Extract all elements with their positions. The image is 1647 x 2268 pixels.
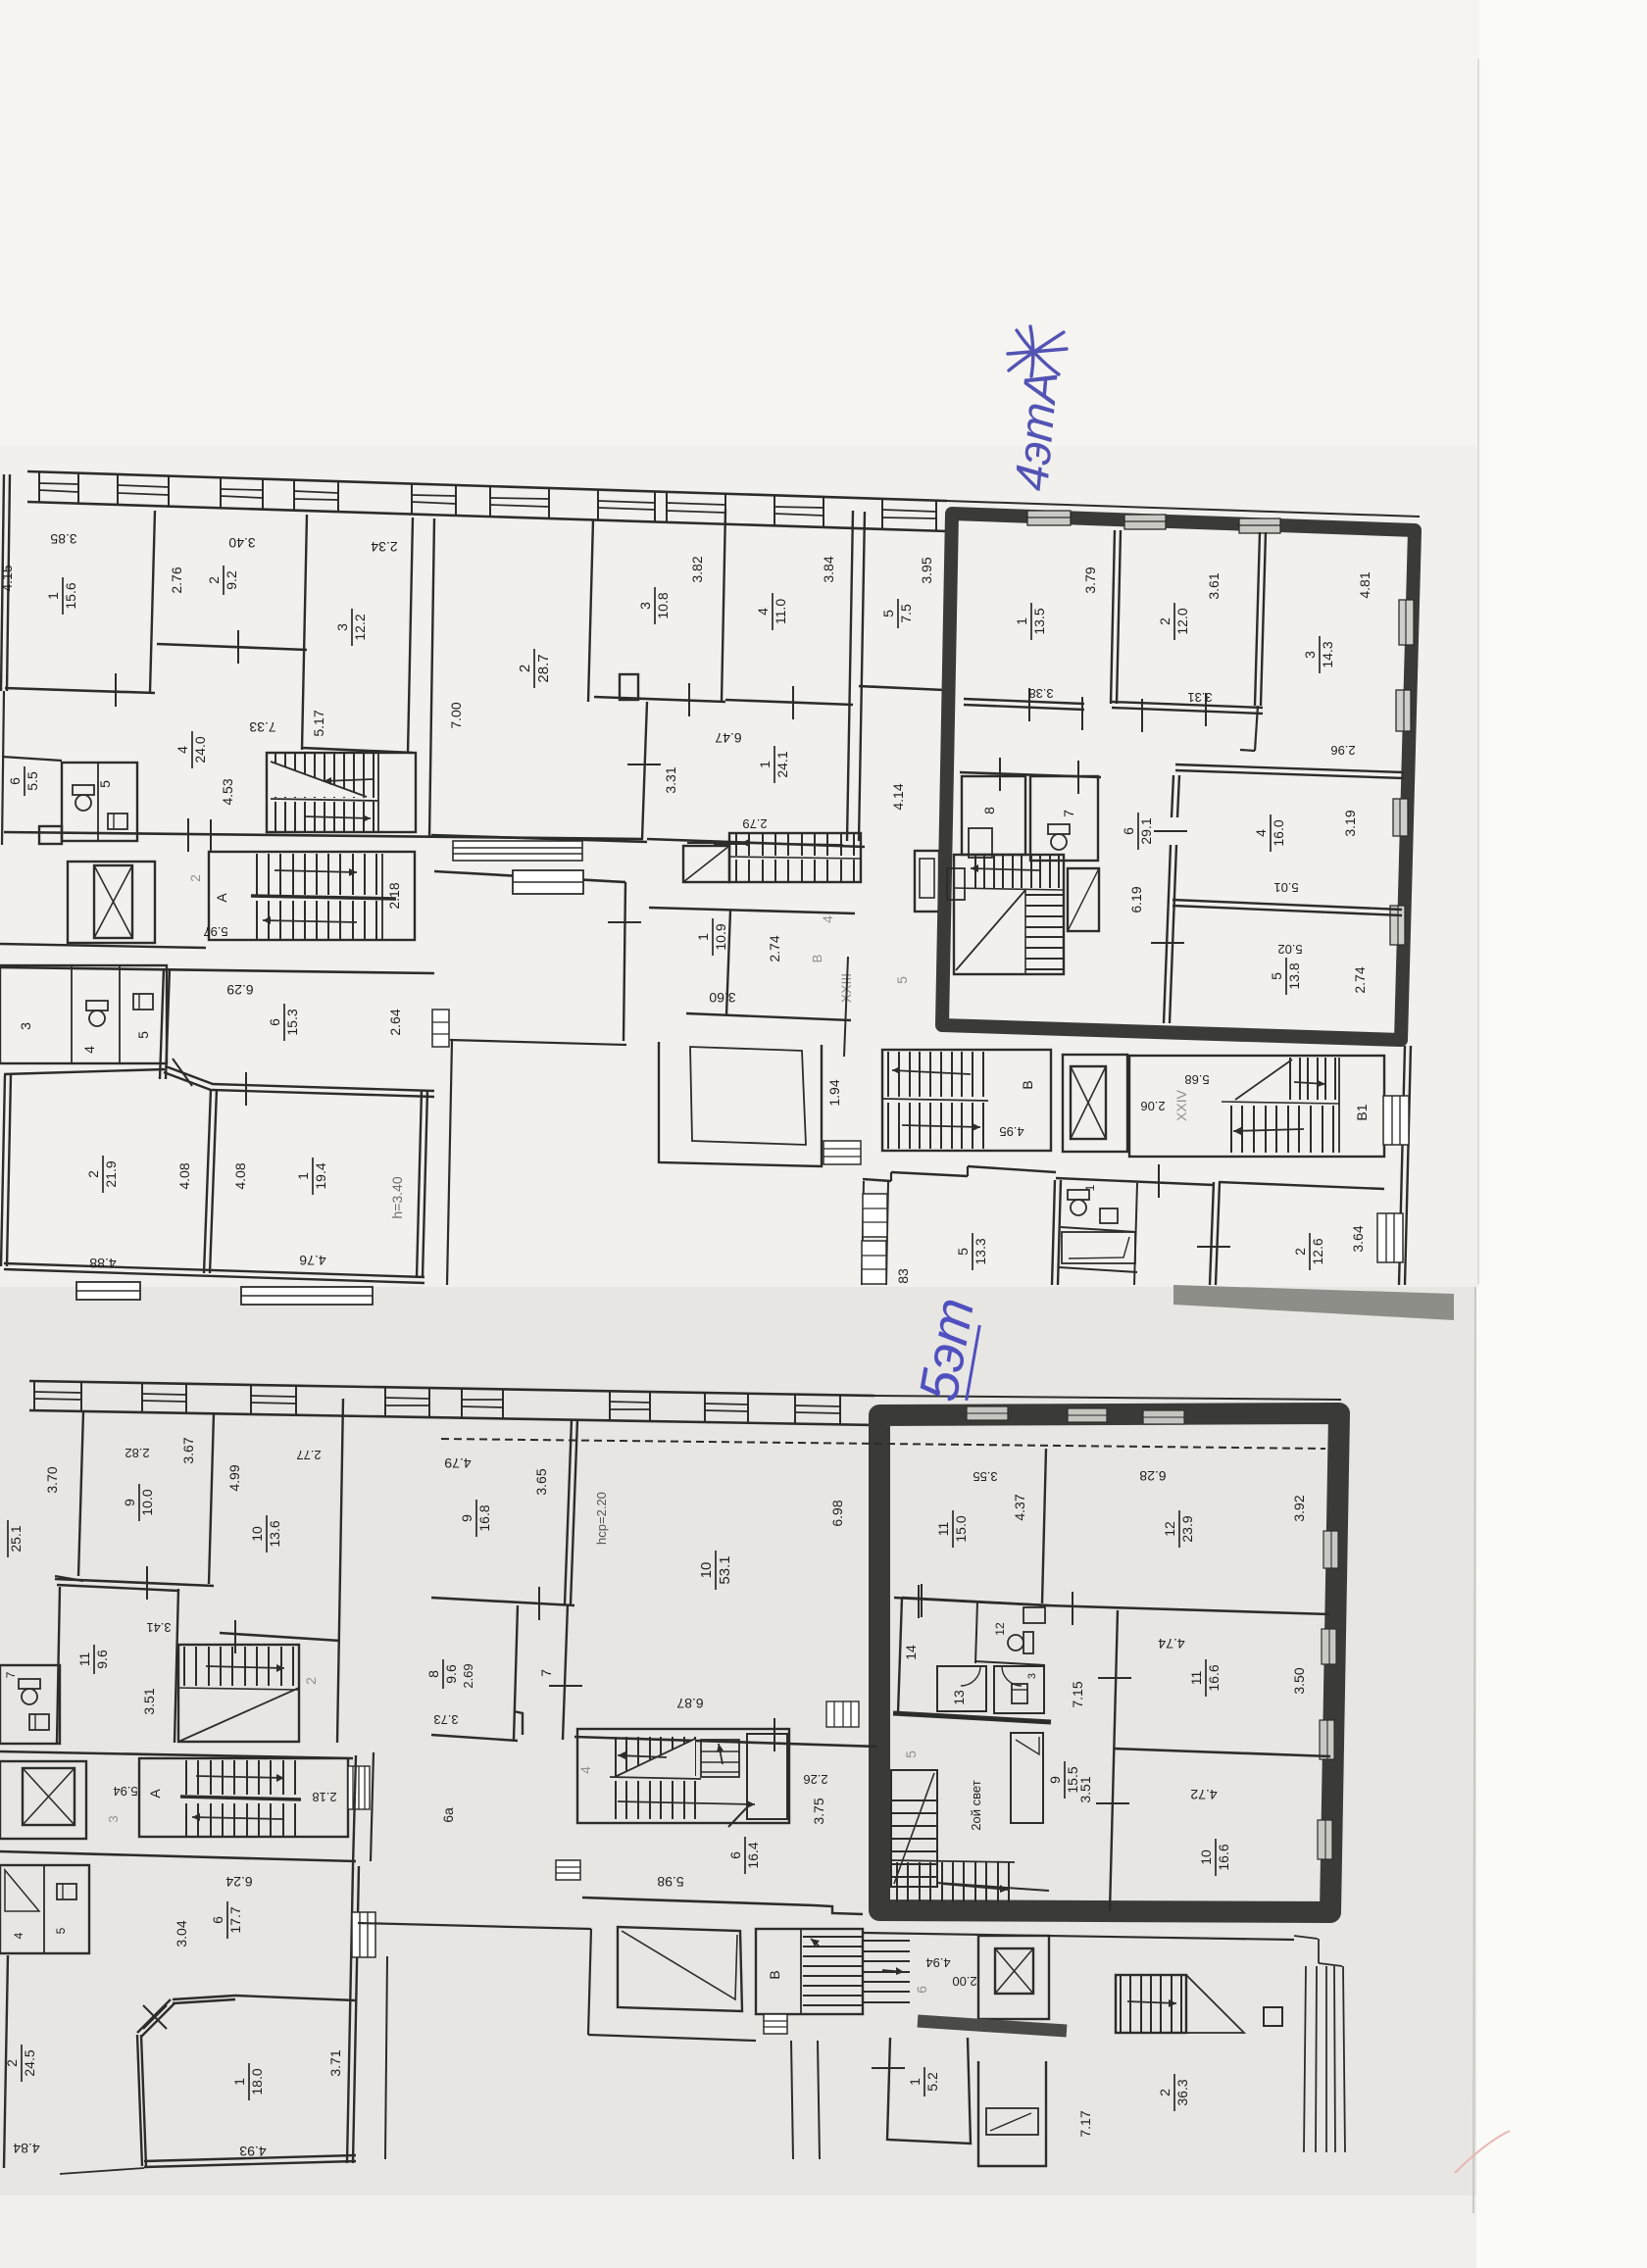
- svg-text:4.99: 4.99: [226, 1464, 242, 1491]
- svg-text:2.64: 2.64: [387, 1009, 403, 1035]
- svg-text:2: 2: [1157, 617, 1173, 625]
- svg-text:3.61: 3.61: [1206, 572, 1222, 599]
- svg-text:11: 11: [935, 1522, 951, 1537]
- svg-text:2: 2: [517, 665, 533, 672]
- svg-text:23.9: 23.9: [1179, 1515, 1195, 1542]
- svg-text:5: 5: [880, 610, 896, 617]
- svg-text:13.3: 13.3: [973, 1238, 988, 1264]
- svg-text:2: 2: [85, 1170, 101, 1178]
- svg-text:6.47: 6.47: [715, 730, 741, 746]
- svg-text:9.6: 9.6: [443, 1664, 459, 1684]
- svg-text:1: 1: [231, 2078, 247, 2086]
- svg-text:9.6: 9.6: [94, 1650, 110, 1669]
- svg-text:7: 7: [538, 1669, 554, 1677]
- svg-text:5: 5: [894, 976, 910, 984]
- svg-text:5: 5: [54, 1927, 68, 1934]
- svg-text:10.0: 10.0: [139, 1489, 155, 1515]
- svg-text:3: 3: [1302, 651, 1318, 659]
- svg-text:10: 10: [249, 1526, 265, 1542]
- svg-text:3.38: 3.38: [1028, 686, 1053, 701]
- svg-text:2.96: 2.96: [1330, 743, 1355, 758]
- svg-text:29.1: 29.1: [1138, 817, 1154, 844]
- svg-text:5: 5: [903, 1750, 919, 1758]
- svg-text:4.84: 4.84: [13, 2141, 39, 2156]
- svg-text:1: 1: [295, 1172, 311, 1180]
- svg-text:3.79: 3.79: [1082, 567, 1098, 593]
- svg-text:3: 3: [1026, 1673, 1038, 1679]
- svg-text:1: 1: [45, 592, 61, 600]
- svg-text:3.75: 3.75: [811, 1798, 826, 1824]
- svg-text:5.97: 5.97: [203, 924, 227, 939]
- svg-text:4: 4: [755, 608, 771, 616]
- svg-text:4.08: 4.08: [232, 1162, 248, 1189]
- svg-text:24.1: 24.1: [774, 751, 790, 777]
- svg-text:2.18: 2.18: [312, 1790, 336, 1804]
- svg-text:1.94: 1.94: [826, 1079, 842, 1106]
- svg-text:9: 9: [122, 1499, 137, 1506]
- svg-text:16.6: 16.6: [1206, 1664, 1222, 1691]
- svg-text:2.74: 2.74: [1352, 966, 1368, 993]
- svg-text:7.15: 7.15: [1070, 1681, 1085, 1707]
- svg-text:В1: В1: [1354, 1104, 1370, 1120]
- svg-text:10.8: 10.8: [655, 592, 671, 618]
- svg-text:5.17: 5.17: [311, 710, 326, 736]
- svg-text:7: 7: [1061, 810, 1076, 817]
- svg-text:6: 6: [727, 1851, 743, 1859]
- svg-text:5: 5: [135, 1031, 151, 1039]
- svg-text:12.0: 12.0: [1174, 608, 1190, 634]
- svg-text:11: 11: [1188, 1671, 1204, 1686]
- svg-text:83: 83: [895, 1268, 911, 1284]
- svg-text:25.1: 25.1: [8, 1525, 24, 1552]
- svg-text:4.08: 4.08: [176, 1162, 192, 1189]
- svg-text:5: 5: [1269, 972, 1284, 980]
- svg-text:5.2: 5.2: [924, 2072, 940, 2092]
- svg-text:14: 14: [903, 1645, 919, 1660]
- svg-text:4этА: 4этА: [1006, 370, 1068, 493]
- svg-text:8: 8: [425, 1670, 441, 1678]
- svg-text:5.98: 5.98: [657, 1874, 683, 1890]
- svg-text:2.26: 2.26: [803, 1772, 827, 1787]
- svg-text:9: 9: [459, 1514, 474, 1522]
- svg-text:4.72: 4.72: [1190, 1787, 1217, 1802]
- svg-text:2.18: 2.18: [386, 882, 402, 909]
- svg-text:3.04: 3.04: [174, 1920, 189, 1947]
- svg-text:16.6: 16.6: [1216, 1844, 1231, 1870]
- svg-text:7.17: 7.17: [1077, 2110, 1093, 2137]
- svg-text:3: 3: [18, 1022, 33, 1030]
- svg-text:36.3: 36.3: [1174, 2079, 1190, 2105]
- svg-text:16.4: 16.4: [745, 1842, 761, 1868]
- svg-text:28.7: 28.7: [535, 654, 552, 682]
- svg-text:2.76: 2.76: [169, 567, 184, 593]
- svg-text:4: 4: [577, 1766, 593, 1774]
- svg-text:12.2: 12.2: [352, 614, 368, 640]
- svg-text:5: 5: [97, 780, 113, 788]
- svg-text:16.8: 16.8: [476, 1504, 492, 1531]
- svg-text:6: 6: [914, 1986, 929, 1994]
- svg-text:3.82: 3.82: [689, 556, 705, 582]
- svg-text:3.84: 3.84: [821, 556, 836, 582]
- svg-text:A: A: [147, 1789, 163, 1799]
- svg-text:2.00: 2.00: [952, 1974, 976, 1989]
- svg-text:6.28: 6.28: [1139, 1468, 1166, 1484]
- svg-text:4.81: 4.81: [1357, 571, 1372, 598]
- svg-text:12.6: 12.6: [1310, 1238, 1325, 1264]
- svg-text:6.98: 6.98: [829, 1500, 845, 1526]
- svg-text:13.6: 13.6: [267, 1520, 282, 1547]
- svg-text:4.74: 4.74: [1158, 1636, 1184, 1652]
- svg-text:6: 6: [7, 777, 23, 785]
- svg-text:13: 13: [951, 1690, 967, 1705]
- svg-text:2.82: 2.82: [125, 1446, 149, 1460]
- svg-text:6.87: 6.87: [676, 1696, 703, 1711]
- svg-text:4: 4: [81, 1046, 97, 1054]
- svg-text:4.15: 4.15: [0, 565, 15, 591]
- svg-text:15.0: 15.0: [953, 1515, 969, 1542]
- svg-text:24.5: 24.5: [22, 2049, 37, 2076]
- svg-text:A: A: [214, 893, 229, 903]
- svg-text:2.06: 2.06: [1140, 1099, 1165, 1113]
- svg-text:4: 4: [820, 915, 835, 923]
- svg-text:15.6: 15.6: [63, 582, 78, 609]
- svg-text:7.5: 7.5: [898, 604, 914, 623]
- svg-text:5.5: 5.5: [25, 771, 40, 791]
- svg-text:2.69: 2.69: [461, 1663, 475, 1688]
- svg-text:3.65: 3.65: [533, 1468, 549, 1495]
- svg-text:4: 4: [1253, 829, 1269, 837]
- svg-text:17.7: 17.7: [227, 1906, 243, 1933]
- svg-text:4.37: 4.37: [1012, 1494, 1027, 1520]
- svg-text:4: 4: [12, 1932, 25, 1939]
- svg-text:2: 2: [303, 1677, 319, 1685]
- svg-text:4.14: 4.14: [890, 783, 906, 810]
- svg-text:3.40: 3.40: [228, 535, 255, 551]
- svg-text:13.8: 13.8: [1286, 962, 1302, 989]
- svg-text:XXIV: XXIV: [1173, 1089, 1189, 1121]
- svg-text:19.4: 19.4: [313, 1162, 328, 1189]
- svg-text:1: 1: [695, 933, 711, 941]
- svg-text:3.51: 3.51: [141, 1688, 157, 1714]
- svg-text:3.41: 3.41: [146, 1620, 171, 1635]
- svg-text:3.71: 3.71: [327, 2049, 343, 2076]
- svg-text:1: 1: [757, 761, 773, 768]
- svg-text:3.67: 3.67: [180, 1437, 196, 1463]
- svg-text:4.95: 4.95: [999, 1124, 1023, 1139]
- svg-text:18.0: 18.0: [249, 2068, 265, 2095]
- svg-text:1: 1: [1083, 1184, 1097, 1191]
- svg-text:5.68: 5.68: [1184, 1072, 1209, 1087]
- svg-text:4.76: 4.76: [299, 1253, 325, 1268]
- svg-text:4: 4: [175, 746, 190, 754]
- svg-text:6: 6: [267, 1018, 282, 1026]
- svg-text:В: В: [810, 955, 824, 963]
- svg-text:2: 2: [1157, 2089, 1173, 2096]
- svg-text:6.24: 6.24: [225, 1874, 252, 1890]
- svg-text:2.74: 2.74: [767, 935, 782, 961]
- svg-text:5.02: 5.02: [1277, 942, 1302, 957]
- svg-text:10: 10: [1198, 1849, 1214, 1865]
- svg-text:2.77: 2.77: [296, 1448, 321, 1462]
- svg-text:13.5: 13.5: [1031, 608, 1047, 634]
- svg-text:14.3: 14.3: [1320, 641, 1335, 667]
- svg-text:3.64: 3.64: [1350, 1225, 1366, 1252]
- svg-text:1: 1: [1014, 617, 1029, 625]
- svg-text:9.2: 9.2: [224, 570, 239, 590]
- svg-text:7.00: 7.00: [448, 702, 464, 728]
- svg-text:1: 1: [907, 2078, 923, 2086]
- svg-text:3.60: 3.60: [709, 990, 735, 1006]
- svg-text:3.31: 3.31: [1187, 690, 1212, 705]
- svg-text:16.0: 16.0: [1271, 819, 1286, 846]
- svg-text:4.94: 4.94: [925, 1955, 950, 1970]
- svg-text:3: 3: [334, 623, 350, 631]
- svg-text:2: 2: [187, 874, 203, 882]
- svg-text:h=3.40: h=3.40: [389, 1176, 405, 1218]
- svg-text:21.9: 21.9: [103, 1160, 119, 1187]
- svg-text:3.19: 3.19: [1342, 810, 1358, 836]
- svg-text:10.9: 10.9: [713, 923, 728, 950]
- svg-text:8: 8: [981, 807, 997, 814]
- svg-text:53.1: 53.1: [717, 1555, 733, 1584]
- svg-text:5.01: 5.01: [1273, 880, 1298, 895]
- svg-text:2: 2: [206, 576, 222, 584]
- svg-text:3: 3: [637, 602, 653, 610]
- svg-text:3.92: 3.92: [1291, 1495, 1307, 1521]
- svg-text:3.70: 3.70: [44, 1466, 60, 1493]
- svg-text:7.33: 7.33: [249, 719, 275, 735]
- svg-text:В: В: [767, 1970, 782, 1979]
- svg-text:12: 12: [1162, 1521, 1177, 1537]
- svg-text:4.53: 4.53: [220, 778, 235, 805]
- svg-text:6а: 6а: [440, 1807, 456, 1823]
- svg-text:5.94: 5.94: [113, 1784, 137, 1799]
- svg-text:6.29: 6.29: [226, 982, 253, 998]
- svg-text:4.88: 4.88: [89, 1256, 116, 1271]
- svg-text:3.31: 3.31: [663, 766, 678, 793]
- svg-text:3.95: 3.95: [919, 557, 934, 583]
- svg-text:12: 12: [993, 1622, 1007, 1636]
- svg-text:7: 7: [4, 1671, 18, 1678]
- svg-text:2.79: 2.79: [742, 816, 767, 831]
- svg-text:2.34: 2.34: [371, 539, 397, 555]
- svg-text:10: 10: [698, 1562, 715, 1579]
- svg-text:4.79: 4.79: [444, 1455, 471, 1471]
- svg-text:6.19: 6.19: [1128, 886, 1144, 912]
- svg-text:3.73: 3.73: [433, 1712, 458, 1727]
- svg-text:24.0: 24.0: [192, 736, 208, 763]
- svg-text:6: 6: [1121, 827, 1136, 835]
- svg-text:11: 11: [76, 1652, 92, 1667]
- svg-text:3.55: 3.55: [973, 1469, 997, 1484]
- svg-text:2: 2: [1292, 1248, 1308, 1256]
- svg-text:11.0: 11.0: [773, 599, 788, 624]
- svg-text:2ой свет: 2ой свет: [969, 1780, 983, 1830]
- svg-text:15.3: 15.3: [284, 1009, 300, 1035]
- svg-text:В: В: [1020, 1080, 1035, 1089]
- svg-text:6: 6: [210, 1916, 225, 1924]
- svg-text:3.85: 3.85: [50, 531, 76, 547]
- svg-text:15.5: 15.5: [1065, 1766, 1080, 1793]
- svg-text:3.50: 3.50: [1291, 1667, 1307, 1694]
- svg-text:hcp=2.20: hcp=2.20: [594, 1492, 609, 1545]
- svg-text:9: 9: [1047, 1776, 1063, 1784]
- svg-text:5: 5: [955, 1248, 971, 1256]
- svg-text:3: 3: [106, 1815, 121, 1822]
